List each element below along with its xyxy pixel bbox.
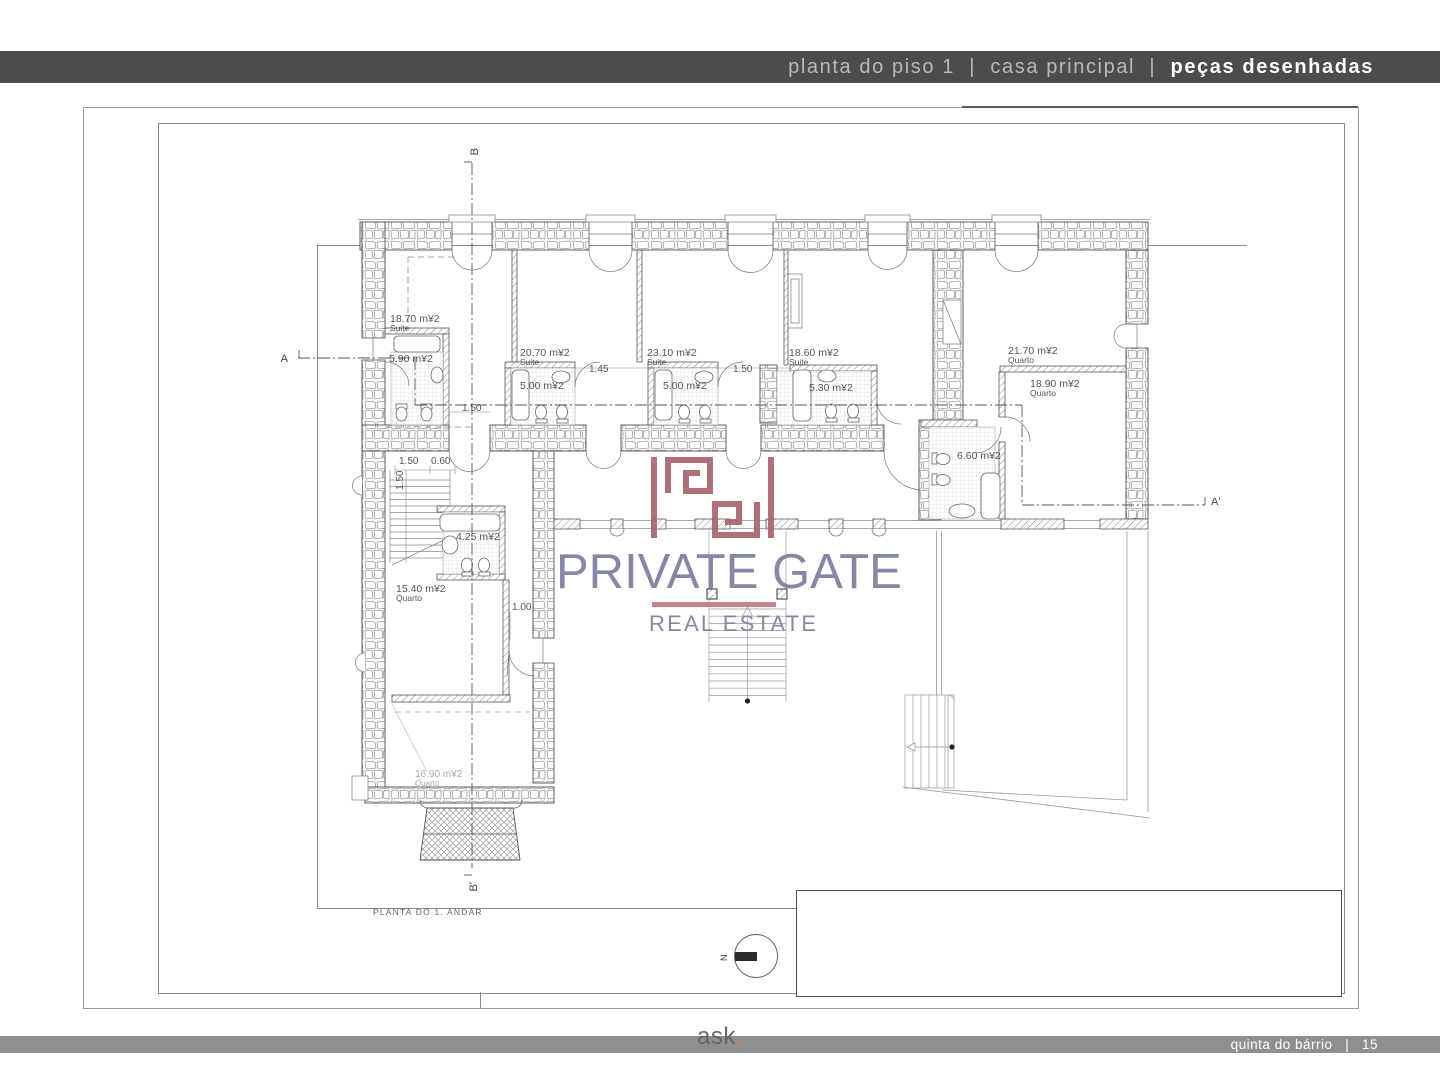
svg-text:1.50: 1.50: [733, 364, 753, 375]
svg-text:A': A': [1211, 496, 1220, 508]
svg-text:Quarto: Quarto: [1008, 355, 1034, 365]
svg-text:Suite: Suite: [520, 357, 540, 367]
svg-text:Quarto: Quarto: [1030, 388, 1056, 398]
svg-text:5.00 m¥2: 5.00 m¥2: [520, 380, 564, 392]
svg-text:Quarto: Quarto: [415, 779, 440, 788]
svg-text:6.60 m¥2: 6.60 m¥2: [957, 450, 1001, 462]
svg-text:B': B': [468, 882, 480, 891]
svg-text:1.45: 1.45: [589, 364, 609, 375]
svg-text:Suite: Suite: [789, 357, 809, 367]
svg-text:5.00 m¥2: 5.00 m¥2: [663, 380, 707, 392]
svg-text:A: A: [281, 353, 289, 365]
svg-text:Quarto: Quarto: [396, 593, 422, 603]
svg-text:Suite: Suite: [647, 357, 667, 367]
svg-text:0.60: 0.60: [431, 456, 451, 467]
svg-text:1.00: 1.00: [512, 602, 532, 613]
svg-text:5.30 m¥2: 5.30 m¥2: [809, 382, 853, 394]
svg-text:1.50: 1.50: [395, 470, 406, 490]
svg-text:4.25 m¥2: 4.25 m¥2: [456, 531, 500, 543]
svg-text:5.90 m¥2: 5.90 m¥2: [389, 353, 433, 365]
svg-text:PLANTA DO 1. ANDAR: PLANTA DO 1. ANDAR: [373, 907, 483, 917]
svg-text:B: B: [469, 148, 481, 155]
svg-text:Suite: Suite: [390, 323, 410, 333]
svg-text:1.50: 1.50: [462, 403, 482, 414]
svg-text:1.50: 1.50: [399, 456, 419, 467]
svg-text:N: N: [719, 955, 729, 962]
